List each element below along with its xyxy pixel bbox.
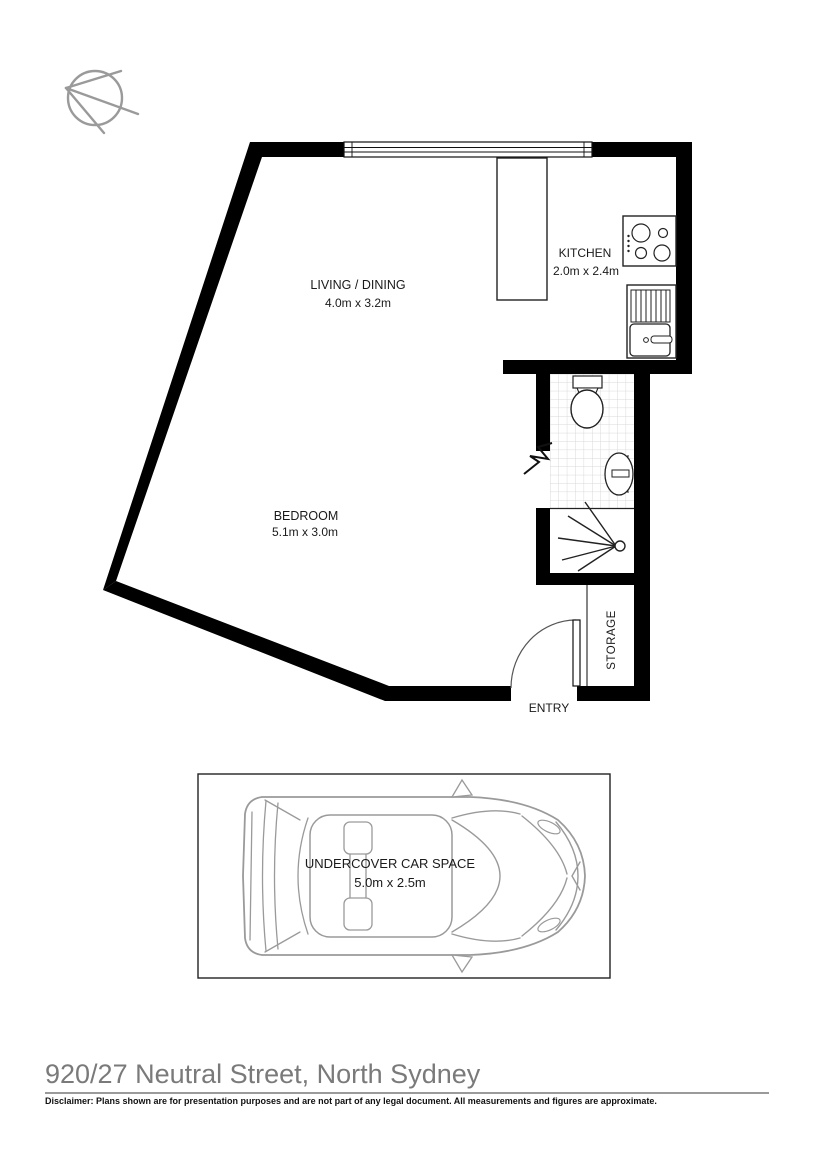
- living-dining-dimensions: 4.0m x 3.2m: [325, 296, 391, 310]
- bathroom-basin-icon: [605, 453, 633, 495]
- wall-right-lower: [634, 360, 650, 701]
- carspace-dimensions: 5.0m x 2.5m: [354, 875, 426, 890]
- floorplan-page: LIVING / DINING 4.0m x 3.2m KITCHEN 2.0m…: [0, 0, 813, 1150]
- carspace-label: UNDERCOVER CAR SPACE: [305, 856, 476, 871]
- living-dining-label: LIVING / DINING: [310, 278, 405, 292]
- door-swing-arc: [511, 620, 576, 688]
- wall-right-upper: [676, 142, 692, 374]
- bedroom-dimensions: 5.1m x 3.0m: [272, 525, 338, 539]
- floorplan-drawing: LIVING / DINING 4.0m x 3.2m KITCHEN 2.0m…: [0, 0, 813, 1150]
- kitchen-label: KITCHEN: [559, 246, 612, 260]
- wall-bathroom-left: [536, 374, 550, 451]
- window: [344, 142, 592, 157]
- wall-kitchen-bottom: [503, 360, 692, 374]
- compass-north-icon: [66, 71, 138, 133]
- wall-left-diagonal: [103, 142, 262, 590]
- cooktop-icon: [623, 216, 676, 266]
- page-title: 920/27 Neutral Street, North Sydney: [45, 1059, 769, 1090]
- footer-divider: [45, 1092, 769, 1094]
- shower: [550, 502, 634, 573]
- wall-bottom-entry-left: [385, 686, 511, 701]
- storage-label: STORAGE: [606, 610, 618, 670]
- kitchen-sink-icon: [627, 285, 676, 358]
- toilet-icon: [571, 376, 603, 428]
- entry-label: ENTRY: [529, 701, 569, 715]
- wall-lower-diagonal: [103, 581, 389, 701]
- bedroom-label: BEDROOM: [274, 509, 339, 523]
- footer-disclaimer: Disclaimer: Plans shown are for presenta…: [45, 1096, 805, 1106]
- kitchen-dimensions: 2.0m x 2.4m: [553, 264, 619, 278]
- entry-door: [511, 620, 580, 688]
- kitchen-island: [497, 158, 547, 300]
- door-leaf: [573, 620, 580, 686]
- wall-shower-bottom: [536, 573, 650, 585]
